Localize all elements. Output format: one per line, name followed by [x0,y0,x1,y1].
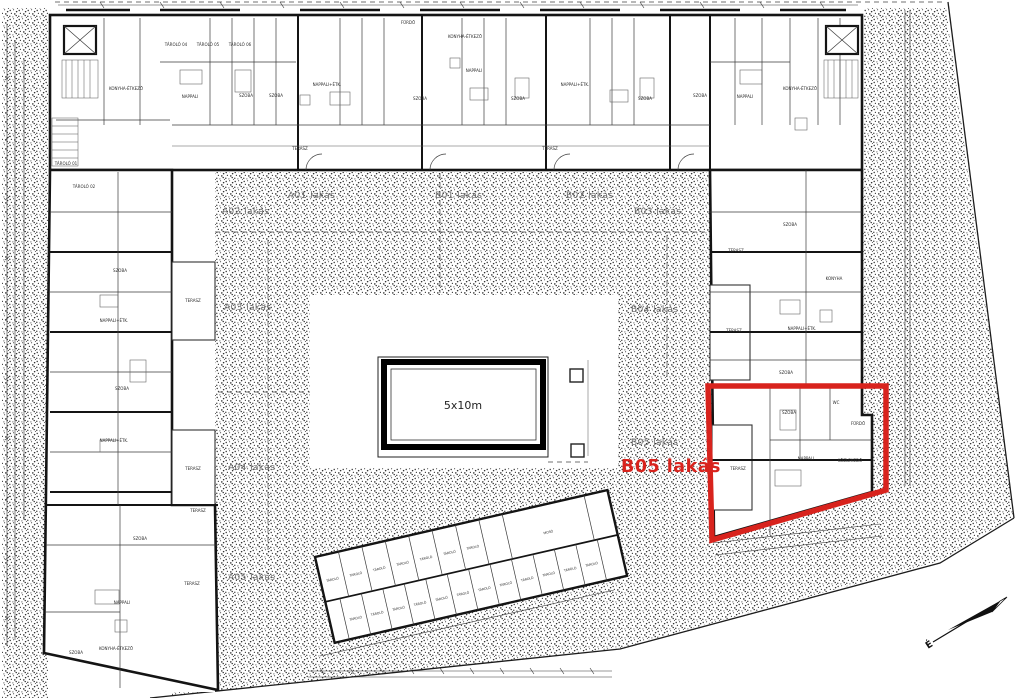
room-label: NAPPALI+ÉTK. [788,326,817,331]
zone-label: B01 lakás [435,191,482,201]
room-label: NAPPALI [737,94,753,99]
room-label: TERASZ [541,146,558,151]
room-label: SZOBA [783,222,797,227]
room-label: TERASZ [729,466,746,471]
room-label: SZOBA [133,536,147,541]
zone-label: A04 lakás [228,463,275,473]
room-label: NAPPALI+ÉTK. [561,82,590,87]
room-label: SZOBA [782,410,796,415]
zone-label: A01 lakás [288,191,335,201]
zone-label: B05 lakás [631,438,678,448]
room-label: WC [833,400,840,405]
elevator-left-icon [64,26,96,54]
room-label: NAPPALI [798,456,814,461]
room-label: KONYHA-ÉTKEZŐ [783,86,817,91]
room-label: SZOBA [693,93,707,98]
zone-label: B04 lakás [631,305,678,315]
room-label: TÁROLÓ 06 [228,42,252,47]
room-label: TÁROLÓ 01 [54,161,78,166]
room-label: SZOBA [779,370,793,375]
zone-label: B03 lakás [634,207,681,217]
room-label: TERASZ [725,328,742,333]
floor-plan-svg: TÁROLÓTÁROLÓTÁROLÓTÁROLÓTÁROLÓTÁROLÓTÁRO… [0,0,1024,698]
room-label: NAPPALI+ÉTK. [100,318,129,323]
zone-label: B02 lakás [566,191,613,201]
room-label: SZOBA [638,96,652,101]
floor-plan-page: TÁROLÓTÁROLÓTÁROLÓTÁROLÓTÁROLÓTÁROLÓTÁRO… [0,0,1024,698]
room-label: TERASZ [189,508,206,513]
room-label: NAPPALI [114,600,130,605]
elevator-right-icon [826,26,858,54]
room-label: TÁROLÓ 02 [72,184,96,189]
room-label: SZOBA [269,93,283,98]
room-label: NAPPALI [466,68,482,73]
room-label: TERASZ [184,298,201,303]
zone-label: A02 lakás [222,207,269,217]
room-label: KÖZLEKEDŐ [838,458,862,463]
room-label: FÜRDŐ [401,20,415,25]
room-label: TERASZ [727,248,744,253]
room-label: TERASZ [184,466,201,471]
room-label: TÁROLÓ 04 [164,42,188,47]
room-label: NAPPALI [182,94,198,99]
room-label: KONYHA-ÉTKEZŐ [448,34,482,39]
room-label: KONYHA-ÉTKEZŐ [109,86,143,91]
room-label: SZOBA [69,650,83,655]
room-label: SZOBA [115,386,129,391]
room-label: FÜRDŐ [851,421,865,426]
room-label: TÁROLÓ 05 [196,42,220,47]
room-label: SZOBA [239,93,253,98]
b05-highlight-label: B05 lakás [621,457,721,477]
room-label: KONYHA-ÉTKEZŐ [99,646,133,651]
room-label: NAPPALI+ÉTK. [100,438,129,443]
room-label: KONYHA [826,276,843,281]
zone-label: A03 lakás [224,303,271,313]
room-label: TERASZ [183,581,200,586]
room-label: TERASZ [291,146,308,151]
room-label: NAPPALI+ÉTK. [313,82,342,87]
pool-size-label: 5x10m [444,399,482,412]
room-label: SZOBA [511,96,525,101]
room-label: SZOBA [413,96,427,101]
room-label: SZOBA [113,268,127,273]
zone-label: A05 lakás [228,573,275,583]
